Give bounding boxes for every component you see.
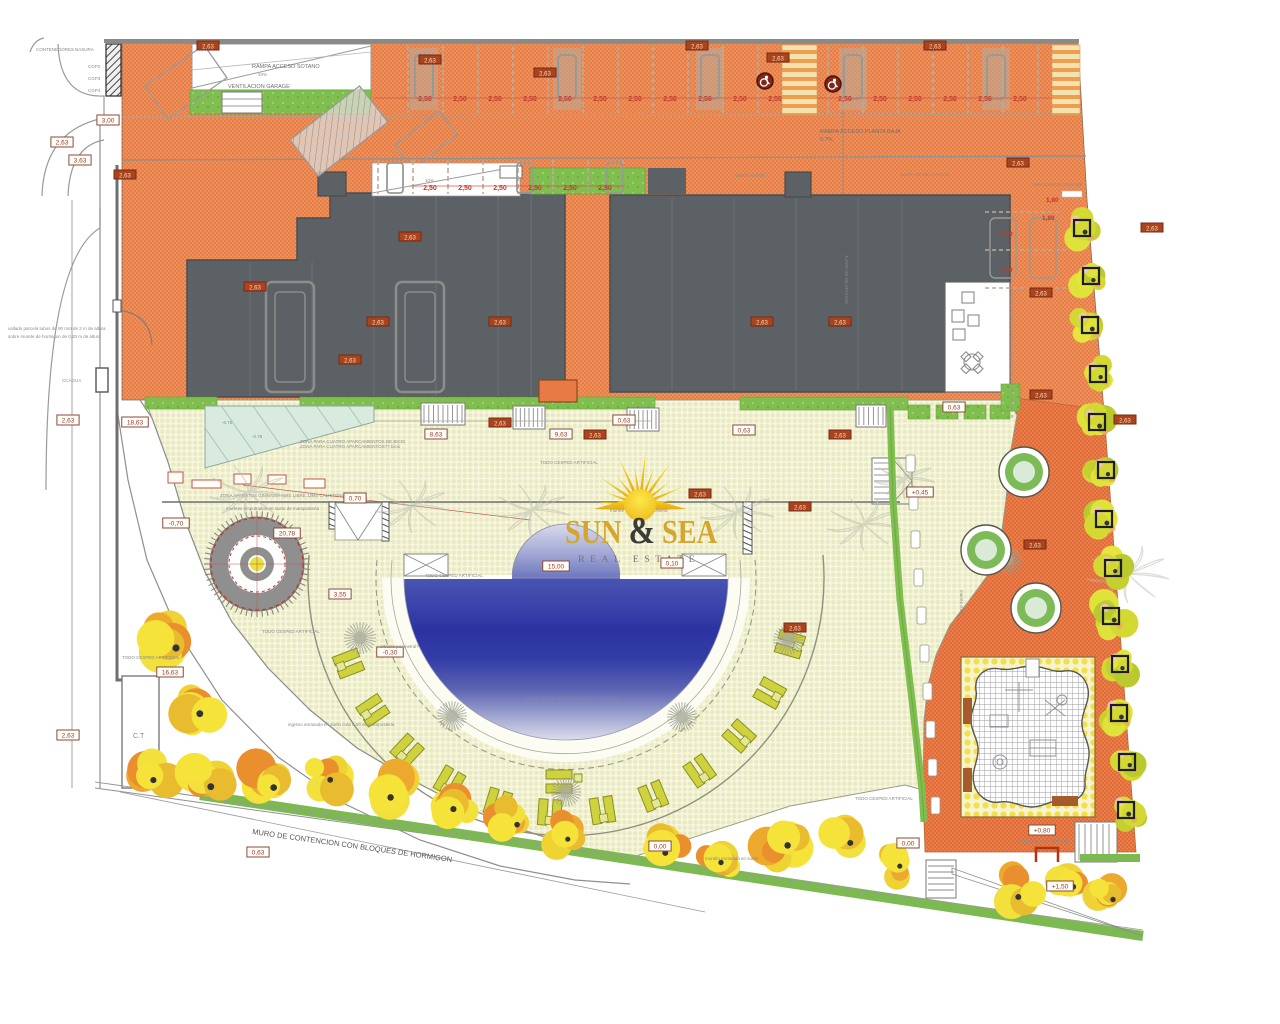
svg-text:CONTENEDORES BASURA: CONTENEDORES BASURA [36, 47, 94, 52]
svg-text:CGP4: CGP4 [88, 88, 101, 93]
svg-text:-0,30: -0,30 [383, 650, 398, 657]
svg-text:8,63: 8,63 [430, 432, 443, 439]
svg-text:2,50: 2,50 [838, 96, 852, 103]
svg-text:CGP2: CGP2 [88, 64, 101, 69]
svg-text:2,50: 2,50 [663, 96, 677, 103]
svg-text:0,00: 0,00 [902, 841, 915, 848]
svg-text:-0.75: -0.75 [222, 420, 233, 425]
svg-text:0,63: 0,63 [948, 405, 961, 412]
svg-text:JUNTA DE DILATACION: JUNTA DE DILATACION [844, 255, 849, 304]
svg-text:2,63: 2,63 [1119, 419, 1131, 425]
svg-text:0,70: 0,70 [349, 496, 362, 503]
svg-text:RAMPA ACCESO PLANTA BAJA: RAMPA ACCESO PLANTA BAJA [820, 129, 901, 135]
svg-text:2,63: 2,63 [404, 236, 416, 242]
svg-text:2,63: 2,63 [1035, 292, 1047, 298]
svg-text:0,63: 0,63 [618, 418, 631, 425]
svg-text:2,50: 2,50 [698, 96, 712, 103]
svg-text:CCAGUA: CCAGUA [62, 378, 81, 383]
svg-text:murete 0.60: murete 0.60 [959, 590, 964, 615]
svg-text:2,63: 2,63 [834, 434, 846, 440]
svg-text:2,63: 2,63 [62, 733, 75, 740]
svg-text:2,50: 2,50 [628, 96, 642, 103]
svg-text:2,63: 2,63 [372, 321, 384, 327]
svg-text:2,63: 2,63 [344, 359, 356, 365]
svg-text:2,63: 2,63 [424, 59, 436, 65]
svg-text:2,63: 2,63 [119, 174, 131, 180]
svg-text:VENTILACION GARAGE: VENTILACION GARAGE [228, 84, 290, 90]
svg-text:2,63: 2,63 [756, 321, 768, 327]
svg-text:2,50: 2,50 [453, 96, 467, 103]
svg-text:2,63: 2,63 [794, 506, 806, 512]
svg-text:TODO CESPED ARTIFICIAL: TODO CESPED ARTIFICIAL [540, 460, 598, 465]
svg-text:0,00: 0,00 [654, 844, 667, 851]
svg-text:3,00: 3,00 [102, 118, 115, 125]
svg-text:2,63: 2,63 [1029, 544, 1041, 550]
svg-text:1,80: 1,80 [1042, 215, 1055, 222]
svg-text:10%: 10% [425, 178, 434, 183]
svg-text:JUNTA DE DILATACION: JUNTA DE DILATACION [900, 172, 949, 177]
svg-text:2,63: 2,63 [539, 72, 551, 78]
svg-text:TODO CESPED ARTIFICIAL: TODO CESPED ARTIFICIAL [425, 573, 483, 578]
svg-text:2,63: 2,63 [494, 422, 506, 428]
svg-text:2,63: 2,63 [694, 493, 706, 499]
svg-text:15,00: 15,00 [548, 564, 565, 571]
svg-text:0,10: 0,10 [666, 561, 679, 568]
svg-text:+1,50: +1,50 [1052, 884, 1069, 891]
svg-text:TODO CESPED ARTIFICIAL: TODO CESPED ARTIFICIAL [122, 655, 180, 660]
svg-text:+0,80: +0,80 [1034, 828, 1051, 835]
svg-text:9,63: 9,63 [555, 432, 568, 439]
svg-text:+0,45: +0,45 [912, 490, 929, 497]
svg-text:ZONA PARA CUATRO APARCAMIENTOS: ZONA PARA CUATRO APARCAMIENTOS DE BICIS [300, 439, 405, 444]
svg-text:C.T: C.T [133, 733, 145, 740]
svg-text:RAMPA ACCESO SOTANO: RAMPA ACCESO SOTANO [252, 64, 320, 70]
svg-text:2,63: 2,63 [1012, 162, 1024, 168]
svg-text:VENTILACION: VENTILACION [735, 173, 765, 178]
svg-text:2,63: 2,63 [202, 45, 214, 51]
svg-text:3,55: 3,55 [334, 592, 347, 599]
svg-text:10%: 10% [258, 72, 267, 77]
svg-text:2,50: 2,50 [523, 96, 537, 103]
svg-text:arbusto perimetral?: arbusto perimetral? [380, 644, 419, 649]
svg-text:-0,70: -0,70 [169, 521, 184, 528]
svg-text:sobre murete de hormigon de 0,: sobre murete de hormigon de 0,20 m de al… [8, 334, 101, 339]
svg-text:2,50: 2,50 [558, 96, 572, 103]
svg-text:2,63: 2,63 [789, 627, 801, 633]
svg-text:2,63: 2,63 [62, 418, 75, 425]
svg-text:18,63: 18,63 [127, 420, 144, 427]
svg-text:2,50: 2,50 [1000, 231, 1013, 238]
svg-text:2,63: 2,63 [56, 140, 69, 147]
svg-text:SUN & SEA: SUN & SEA [565, 510, 717, 552]
svg-text:TODO CESPED ARTIFICIAL: TODO CESPED ARTIFICIAL [262, 629, 320, 634]
svg-text:0,63: 0,63 [252, 850, 265, 857]
svg-text:ingreso enrasada en suelo cota: ingreso enrasada en suelo cota 0,00 de m… [288, 722, 395, 727]
svg-text:2,50: 2,50 [488, 96, 502, 103]
svg-text:2,63: 2,63 [772, 57, 784, 63]
svg-text:vallado piscina tubos de 90 cm: vallado piscina tubos de 90 cm de 1 m de… [525, 696, 621, 701]
svg-text:CGP3: CGP3 [88, 76, 101, 81]
svg-text:2,50: 2,50 [418, 96, 432, 103]
svg-text:16,63: 16,63 [162, 670, 179, 677]
svg-text:TODO CESPED ARTIFICIAL: TODO CESPED ARTIFICIAL [855, 796, 913, 801]
svg-text:vallado parcela tubos de 90 mm: vallado parcela tubos de 90 mm de 2 m de… [8, 326, 106, 331]
svg-text:muralla enrasada en suelo: muralla enrasada en suelo [705, 856, 759, 861]
svg-text:VENTILACION GARAGE: VENTILACION GARAGE [1032, 182, 1083, 187]
svg-text:2,50: 2,50 [908, 96, 922, 103]
svg-text:2,63: 2,63 [929, 45, 941, 51]
svg-text:2,63: 2,63 [691, 45, 703, 51]
svg-text:2,50: 2,50 [873, 96, 887, 103]
svg-text:0,63: 0,63 [738, 428, 751, 435]
svg-text:2,63: 2,63 [589, 434, 601, 440]
svg-text:2,63: 2,63 [494, 321, 506, 327]
svg-text:2,50: 2,50 [1000, 267, 1013, 274]
svg-text:2,63: 2,63 [249, 286, 261, 292]
svg-text:5.7%: 5.7% [820, 137, 833, 143]
svg-text:2,63: 2,63 [1035, 394, 1047, 400]
svg-text:2,50: 2,50 [1013, 96, 1027, 103]
svg-text:2,63: 2,63 [834, 321, 846, 327]
svg-text:VENTILACION GARAGE: VENTILACION GARAGE [1018, 839, 1069, 844]
svg-text:2,50: 2,50 [978, 96, 992, 103]
svg-text:2,50: 2,50 [593, 96, 607, 103]
svg-text:ZONA PARA CUATRO APARCAMIENTOS: ZONA PARA CUATRO APARCAMIENTOS?? bicis [300, 444, 401, 449]
svg-text:1,80: 1,80 [1046, 197, 1059, 204]
svg-text:20,78: 20,78 [279, 531, 296, 538]
svg-text:3,63: 3,63 [74, 158, 87, 165]
svg-text:2,50: 2,50 [733, 96, 747, 103]
svg-text:2,50: 2,50 [768, 96, 782, 103]
svg-text:2,50: 2,50 [943, 96, 957, 103]
svg-text:muretes empotrados en suelo de: muretes empotrados en suelo de mamposter… [226, 506, 320, 511]
svg-text:-0.75: -0.75 [252, 434, 263, 439]
svg-text:2,63: 2,63 [1146, 227, 1158, 233]
